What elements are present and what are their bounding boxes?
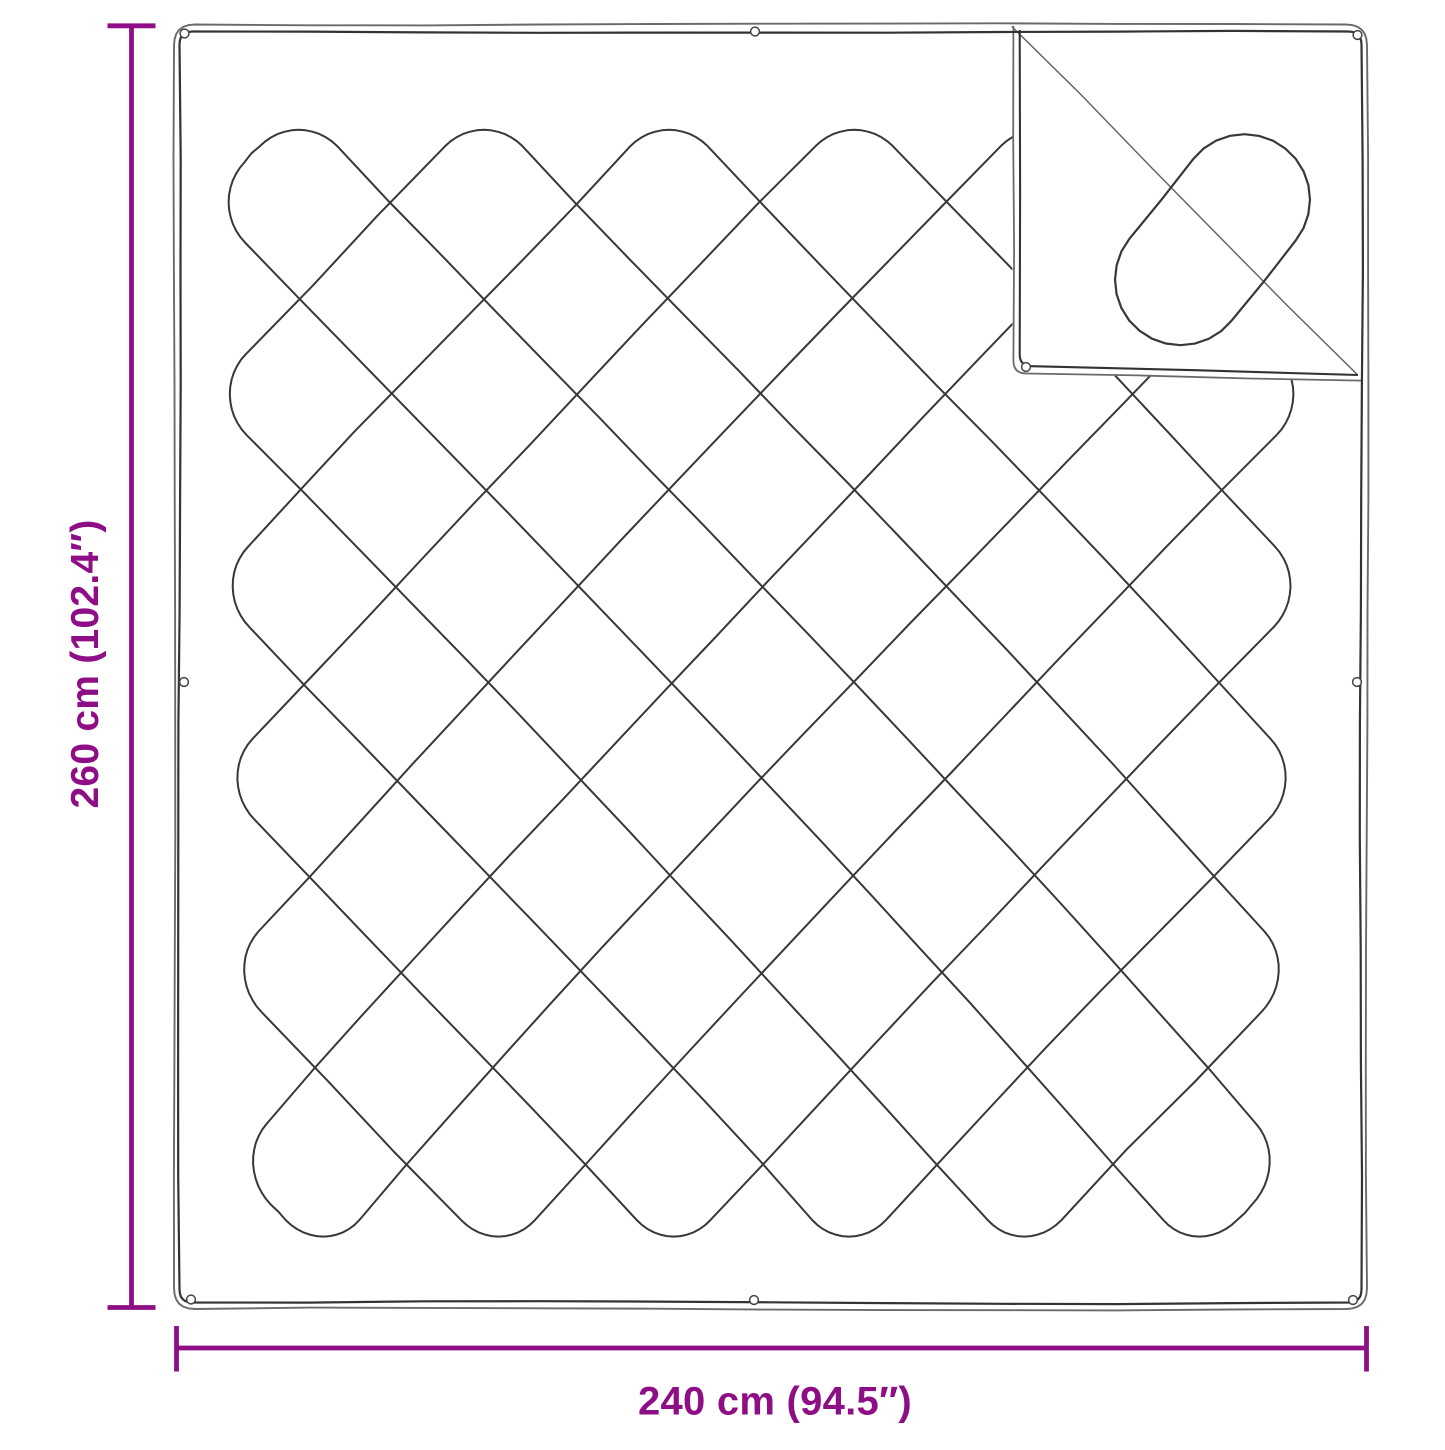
svg-text:240 cm (94.5″): 240 cm (94.5″): [638, 1380, 912, 1424]
svg-text:260 cm (102.4″): 260 cm (102.4″): [64, 519, 107, 808]
